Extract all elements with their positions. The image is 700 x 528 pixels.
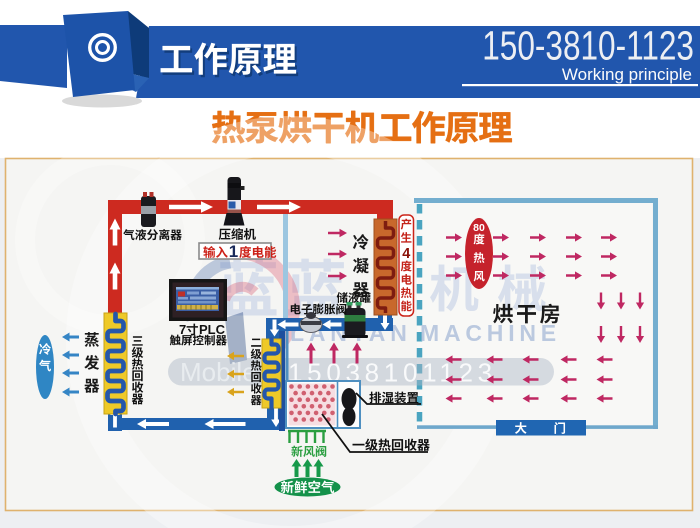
svg-text:MACHINE: MACHINE (420, 320, 561, 346)
svg-text:1: 1 (229, 242, 238, 261)
svg-text:150-3810-1123: 150-3810-1123 (482, 23, 694, 69)
svg-text:PLC: PLC (199, 322, 226, 337)
svg-text:Working principle: Working principle (562, 65, 692, 84)
svg-text:80: 80 (473, 222, 485, 234)
svg-text:7: 7 (179, 322, 186, 337)
svg-text:4: 4 (402, 246, 410, 262)
svg-text:Mobile:: Mobile: (180, 357, 264, 387)
